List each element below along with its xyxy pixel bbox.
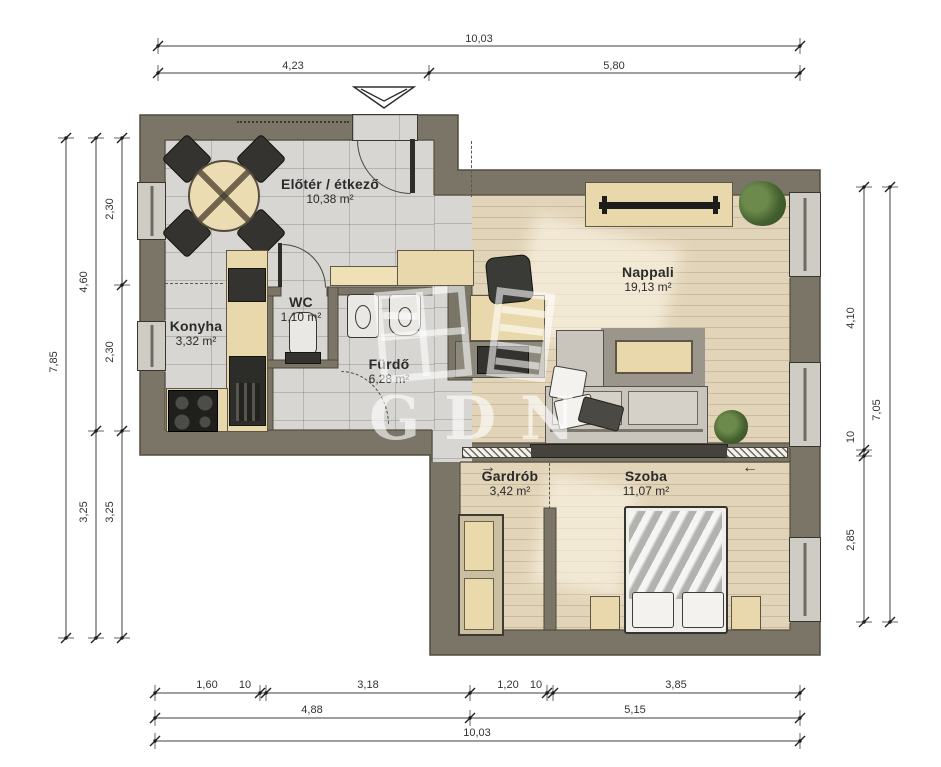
sliding-door-track-right bbox=[726, 447, 788, 458]
sofa-cushion bbox=[628, 391, 698, 425]
dim-top-total: 10,03 bbox=[465, 33, 493, 45]
bed-blanket bbox=[629, 511, 722, 599]
dim-right-total: 7,05 bbox=[871, 399, 883, 420]
window-right-3 bbox=[789, 537, 821, 622]
window-pane bbox=[804, 543, 807, 616]
room-area: 3,32 m² bbox=[170, 334, 223, 348]
room-name: Szoba bbox=[623, 468, 669, 484]
room-name: Fürdő bbox=[369, 356, 410, 372]
room-name: WC bbox=[281, 294, 322, 310]
dim-top-a: 4,23 bbox=[282, 60, 303, 72]
sliding-door-track-left bbox=[462, 447, 532, 458]
dim-bottom-total: 10,03 bbox=[463, 727, 491, 739]
entry-direction-icon bbox=[352, 84, 416, 112]
hall-cabinet-low bbox=[330, 266, 398, 286]
room-label-entry: Előtér / étkező 10,38 m² bbox=[281, 176, 379, 206]
bathroom-toilet bbox=[389, 294, 421, 336]
dim-left-total: 7,85 bbox=[48, 351, 60, 372]
window-left-1 bbox=[137, 182, 166, 240]
bed-pillow bbox=[682, 592, 724, 628]
dim-bottom1-f: 3,85 bbox=[665, 679, 686, 691]
wardrobe-shelf bbox=[464, 578, 494, 630]
window-right-1 bbox=[789, 192, 821, 277]
nightstand bbox=[590, 596, 620, 630]
room-area: 3,42 m² bbox=[482, 484, 539, 498]
window-pane bbox=[804, 198, 807, 271]
dim-bottom1-e: 10 bbox=[530, 679, 542, 691]
wc-toilet-tank bbox=[285, 352, 321, 364]
dim-right-inner-c: 2,85 bbox=[845, 529, 857, 550]
window-pane bbox=[150, 186, 153, 235]
dim-left-inner-a: 2,30 bbox=[104, 198, 116, 219]
floorplan-canvas: → ← bbox=[0, 0, 941, 767]
dim-left-inner-b: 2,30 bbox=[104, 341, 116, 362]
floor-hall-tile bbox=[434, 195, 472, 430]
room-name: Gardrób bbox=[482, 468, 539, 484]
slide-left-arrow-icon: ← bbox=[742, 459, 758, 477]
room-name: Konyha bbox=[170, 318, 223, 334]
dim-bottom2-b: 5,15 bbox=[624, 704, 645, 716]
room-label-wardrobe: Gardrób 3,42 m² bbox=[482, 468, 539, 498]
plant-icon bbox=[714, 410, 748, 444]
dim-bottom1-a: 1,60 bbox=[196, 679, 217, 691]
room-area: 10,38 m² bbox=[281, 192, 379, 206]
kitchen-boundary-dashed bbox=[165, 283, 223, 284]
room-name: Nappali bbox=[622, 264, 674, 280]
cabinet-item bbox=[477, 346, 529, 374]
window-right-2 bbox=[789, 362, 821, 447]
room-label-livingroom: Nappali 19,13 m² bbox=[622, 264, 674, 294]
dim-bottom1-c: 3,18 bbox=[357, 679, 378, 691]
room-area: 11,07 m² bbox=[623, 484, 669, 498]
plant-icon bbox=[739, 181, 786, 226]
dim-bottom2-a: 4,88 bbox=[301, 704, 322, 716]
dim-left-mid-a: 4,60 bbox=[78, 271, 90, 292]
entry-living-boundary-dashed bbox=[471, 141, 472, 197]
sink-drainer bbox=[236, 383, 260, 421]
room-label-wc: WC 1,10 m² bbox=[281, 294, 322, 324]
window-left-2 bbox=[137, 321, 166, 371]
window-pane bbox=[804, 368, 807, 441]
sink-basin bbox=[355, 305, 371, 329]
hall-cabinet-tall bbox=[397, 250, 474, 286]
sofa-seam bbox=[550, 429, 703, 432]
stove-cooktop bbox=[168, 390, 218, 432]
toilet-bowl bbox=[398, 307, 412, 327]
room-label-bathroom: Fürdő 6,28 m² bbox=[369, 356, 410, 386]
window-pane bbox=[150, 325, 153, 367]
tv-screen bbox=[599, 202, 720, 209]
sliding-door-panel bbox=[530, 444, 728, 458]
room-name: Előtér / étkező bbox=[281, 176, 379, 192]
dim-left-mid-b: 3,25 bbox=[78, 501, 90, 522]
dim-right-inner-b: 10 bbox=[845, 431, 857, 443]
dim-bottom1-d: 1,20 bbox=[497, 679, 518, 691]
top-wall-dotted-line bbox=[237, 121, 349, 123]
wardrobe-bedroom-boundary-dashed bbox=[549, 463, 550, 509]
entry-door-opening bbox=[352, 114, 418, 141]
dim-left-inner-c: 3,25 bbox=[104, 501, 116, 522]
kitchen-sink-unit bbox=[229, 356, 266, 426]
bed-pillow bbox=[632, 592, 674, 628]
room-label-bedroom: Szoba 11,07 m² bbox=[623, 468, 669, 498]
coffee-table bbox=[615, 340, 693, 374]
dim-top-b: 5,80 bbox=[603, 60, 624, 72]
room-label-kitchen: Konyha 3,32 m² bbox=[170, 318, 223, 348]
dim-right-inner-a: 4,10 bbox=[845, 307, 857, 328]
nightstand bbox=[731, 596, 761, 630]
dim-bottom1-b: 10 bbox=[239, 679, 251, 691]
room-area: 1,10 m² bbox=[281, 310, 322, 324]
room-area: 19,13 m² bbox=[622, 280, 674, 294]
room-area: 6,28 m² bbox=[369, 372, 410, 386]
dining-table bbox=[188, 160, 260, 232]
wardrobe-cabinet bbox=[458, 514, 504, 636]
desk-chair bbox=[485, 254, 535, 305]
bathroom-sink bbox=[347, 294, 379, 338]
wardrobe-shelf bbox=[464, 521, 494, 571]
kitchen-appliance bbox=[228, 268, 266, 302]
